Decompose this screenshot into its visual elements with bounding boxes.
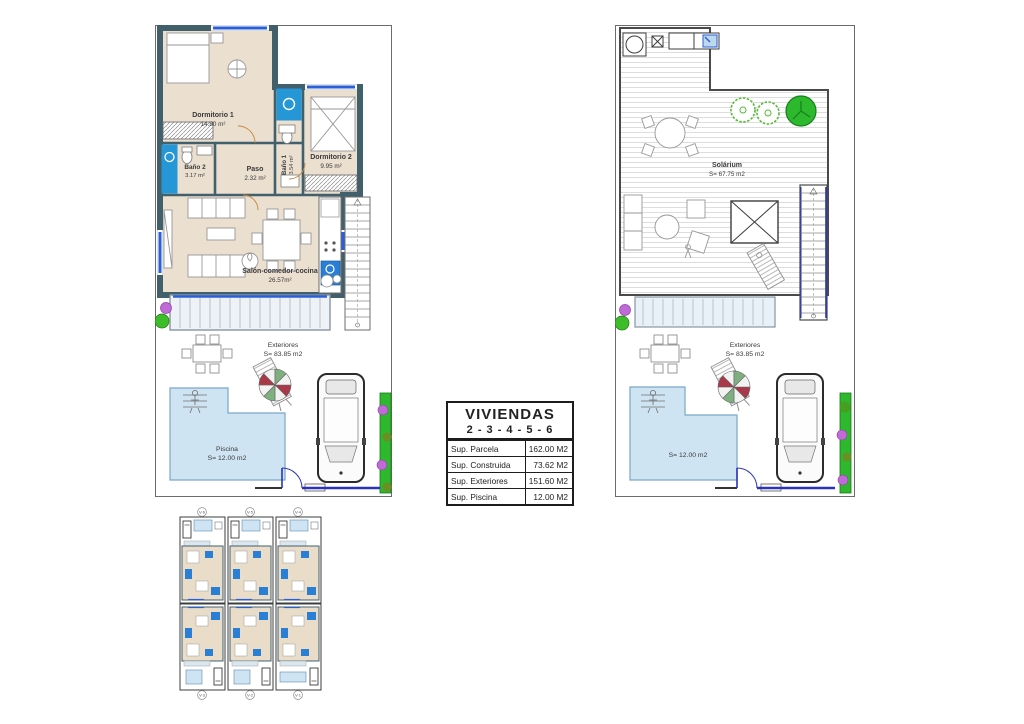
roof-floor-plan: Solárium S= 67.75 m2 Exteriores S= 83.85…	[615, 25, 855, 497]
spec-table-header: VIVIENDAS 2 - 3 - 4 - 5 - 6	[448, 403, 572, 440]
skylight	[731, 201, 778, 243]
unit-badge-label: V-3	[199, 693, 206, 698]
label-bano2: Baño 2	[184, 164, 206, 171]
area-dormitorio2: 9.95 m²	[320, 163, 341, 170]
site-unit	[228, 604, 273, 690]
spec-label: Sup. Parcela	[448, 441, 525, 456]
car	[775, 374, 825, 482]
spec-row-exteriores: Sup. Exteriores 151.60 M2	[448, 472, 572, 488]
ground-floor-plan: Dormitorio 1 14.80 m² Baño 1 3.54 m² Dor…	[155, 25, 392, 497]
spec-label: Sup. Piscina	[448, 489, 525, 504]
area-exteriores-ground: S= 83.85 m2	[264, 351, 303, 358]
site-unit	[276, 517, 321, 603]
unit-badge-label: V-5	[247, 510, 254, 515]
kitchen-counter	[319, 197, 341, 293]
architectural-sheet: { "ground_floor": { "rooms": { "dormitor…	[0, 0, 1024, 724]
spec-value: 12.00 M2	[525, 489, 572, 504]
label-piscina: Piscina	[216, 446, 238, 453]
area-salon: 26.57m²	[268, 277, 291, 284]
umbrella	[718, 371, 750, 403]
label-solarium: Solárium	[712, 162, 742, 169]
roof-stairs	[800, 185, 827, 320]
unit-badge-label: V-4	[295, 510, 302, 515]
shower-bath1	[277, 89, 302, 121]
spec-value: 73.62 M2	[525, 457, 572, 472]
pergola-terrace	[635, 297, 775, 327]
car	[316, 374, 366, 482]
area-bano2: 3.17 m²	[185, 173, 205, 179]
label-salon: Salón-comedor-cocina	[242, 268, 318, 275]
label-bano1: Baño 1	[282, 154, 288, 175]
label-exteriores-ground: Exteriores	[268, 342, 299, 349]
area-piscina: S= 12.00 m2	[208, 455, 247, 462]
exterior-stairs	[345, 197, 370, 330]
site-unit	[180, 517, 225, 603]
area-exteriores-roof: S= 83.85 m2	[726, 351, 765, 358]
label-paso: Paso	[247, 166, 264, 173]
spec-row-piscina: Sup. Piscina 12.00 M2	[448, 488, 572, 504]
unit-badge-label: V-6	[199, 510, 206, 515]
area-dormitorio1: 14.80 m²	[201, 121, 226, 128]
unit-badge-label: V-1	[295, 693, 302, 698]
site-unit	[180, 604, 225, 690]
unit-badge-label: V-2	[247, 693, 254, 698]
site-unit	[228, 517, 273, 603]
label-dormitorio1: Dormitorio 1	[192, 112, 234, 119]
umbrella	[259, 369, 291, 401]
pergola-terrace	[170, 295, 330, 330]
spec-table-subtitle: 2 - 3 - 4 - 5 - 6	[450, 424, 570, 436]
spec-table: VIVIENDAS 2 - 3 - 4 - 5 - 6 Sup. Parcela…	[446, 401, 574, 506]
wardrobe-dorm2	[305, 175, 357, 191]
area-piscina-roof: S= 12.00 m2	[669, 452, 708, 459]
site-key-plan: V-6 V-5 V-4 V-3 V-2 V-1	[178, 507, 323, 700]
label-exteriores-roof: Exteriores	[730, 342, 761, 349]
bed-dorm2	[311, 97, 355, 151]
spec-row-construida: Sup. Construida 73.62 M2	[448, 456, 572, 472]
spec-row-parcela: Sup. Parcela 162.00 M2	[448, 440, 572, 456]
spec-value: 162.00 M2	[525, 441, 572, 456]
spec-label: Sup. Exteriores	[448, 473, 525, 488]
area-solarium: S= 67.75 m2	[709, 171, 745, 178]
site-unit	[276, 604, 321, 690]
label-dormitorio2: Dormitorio 2	[310, 154, 352, 161]
area-bano1: 3.54 m²	[289, 155, 295, 174]
spec-value: 151.60 M2	[525, 473, 572, 488]
spec-table-title: VIVIENDAS	[450, 406, 570, 423]
spec-label: Sup. Construida	[448, 457, 525, 472]
area-paso: 2.32 m²	[244, 175, 265, 182]
